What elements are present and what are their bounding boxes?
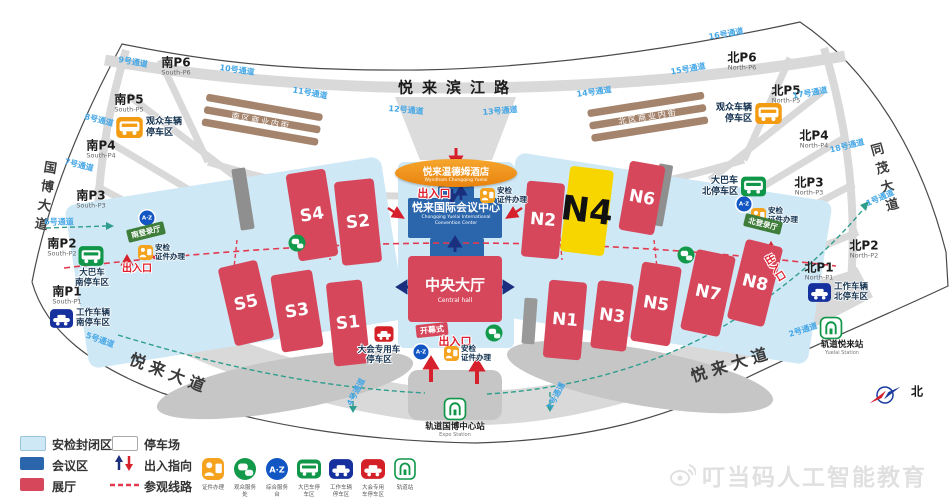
security-center: 安检证件办理 [444,344,491,363]
legend-icon-confcar: 大会专用车停车区 [360,458,386,499]
visitor-parking-east: 观众车辆停车区 [716,103,782,125]
work-vehicle-icon [808,283,831,302]
yuelai-station-icon [820,317,843,340]
parking-south-p3: 南P3South-P3 [76,189,105,208]
hall-n1: N1 [543,279,588,360]
legend-parkinglot-label: 停车场 [144,436,180,453]
legend-hall-label: 展厅 [52,478,76,495]
credential-icon [201,458,225,480]
security-top: 安检证件办理 [480,186,527,205]
entrance-west: 出入口 [122,260,152,275]
svg-text:A·Z: A·Z [269,464,285,474]
work-vehicle-north: 工作车辆北停车区 [808,282,868,302]
az-icon: A·Z [265,458,289,480]
legend-icon-metro: 轨道站 [392,458,418,492]
work-vehicle-south: 工作车辆南停车区 [50,308,110,328]
yuelai-station-label: 轨道悦来站 Yuelai Station [821,340,864,356]
legend-icon-workcar: 工作车辆停车区 [328,458,354,499]
legend-route-label: 参观线路 [144,478,192,495]
service-point-icon [678,247,695,264]
parking-south-p1: 南P1South-P1 [52,285,81,304]
road-binjiang: 悦来滨江路 [398,77,518,98]
security-south: 安检证件办理 [138,243,185,262]
legend-hall-swatch [20,478,44,491]
conference-car-icon [375,326,394,342]
coach-bus-south-label: 大巴车南停车区 [75,268,109,288]
az-info-icon: A·Z [414,345,429,360]
credential-icon [444,346,459,361]
coach-bus-south-icon [79,246,104,267]
credential-icon [138,245,153,260]
conference-car-icon [361,458,385,480]
legend-security-label: 安检封闭区 [52,436,112,453]
parking-north-p4: 北P4North-P4 [799,129,828,148]
expo-station-label: 轨道国博中心站 Expo Station [425,422,485,438]
legend-icon-az: A·Z 综合服务台 [264,458,290,499]
venue-map: 悦来滨江路 国博大道 同茂大道 悦来大道 悦来大道 北 南P6South-P6 … [0,0,949,500]
parking-north-p1: 北P1North-P1 [804,261,833,280]
central-hall: 中央大厅 Central hall [408,256,502,322]
work-vehicle-icon [50,309,73,328]
legend-direction-label: 出入指向 [144,457,192,474]
credential-icon [480,188,495,203]
parking-north-p6: 北P6North-P6 [727,51,756,70]
legend-route-dashes [110,481,140,489]
parking-north-p2: 北P2North-P2 [849,239,878,258]
bus-icon [297,458,321,480]
legend-icon-bus: 大巴车停车区 [296,458,322,499]
service-point-icon [289,235,306,252]
parking-north-p3: 北P3North-P3 [794,176,823,195]
convention-center-label: 悦来国际会议中心 Chongqing Yuelai International … [412,201,500,227]
legend-icon-credential: 证件办理 [200,458,226,492]
legend-parkinglot-swatch [112,436,138,451]
metro-icon [393,458,417,480]
coach-bus-north-icon [741,176,766,197]
watermark: 叮当码人工智能教育 [668,458,927,492]
parking-south-p2: 南P2South-P2 [47,237,76,256]
conference-car-label: 大会专用车停车区 [358,345,401,365]
legend-icon-service: 观众服务处 [232,458,258,499]
legend-security-swatch [20,436,46,451]
coach-bus-north: 大巴车北停车区 [702,176,766,198]
service-point-icon [486,325,503,342]
hotel-badge: 悦来温德姆酒店 Wyndham Chongqing Yuelai [395,159,517,187]
visitor-bus-icon [116,117,143,138]
tunnel-6-label: 6号通道 [44,217,74,228]
parking-south-p4: 南P4South-P4 [86,139,115,158]
parking-south-p6: 南P6South-P6 [161,56,190,75]
az-info-icon: A·Z [737,197,752,212]
parking-south-p5: 南P5South-P5 [114,93,143,112]
legend-direction-arrows [112,454,138,472]
compass-north-label: 北 [911,383,923,400]
watermark-logo [668,461,696,489]
watermark-text: 叮当码人工智能教育 [702,458,927,492]
legend-conference-swatch [20,457,44,470]
service-icon [233,458,257,480]
visitor-parking-west: 观众车辆停车区 [116,117,182,139]
hall-s2: S2 [334,178,383,266]
visitor-bus-icon [755,103,782,124]
compass-icon [867,383,904,407]
expo-station-icon [444,398,467,421]
legend-conference-label: 会议区 [52,457,88,474]
entrance-top: 出入口 [418,185,451,201]
work-vehicle-icon [329,458,353,480]
